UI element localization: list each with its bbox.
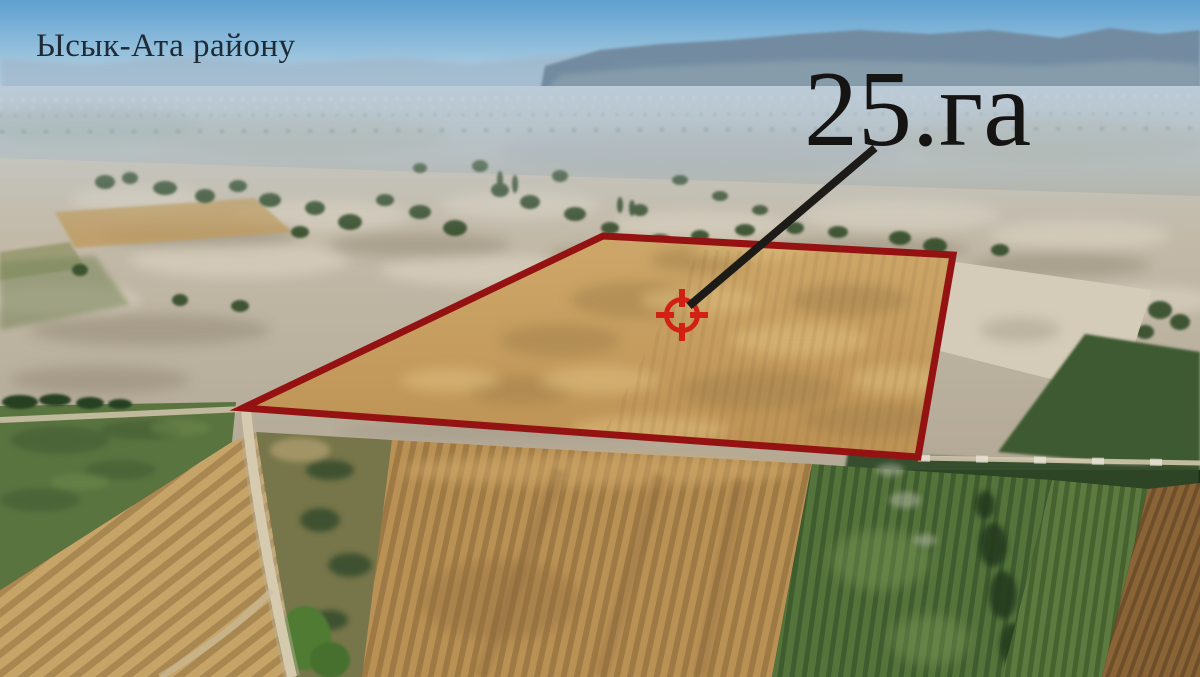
area-label: 25.га — [804, 56, 1031, 164]
aerial-photo-frame: Ысык-Ата району 25.га — [0, 0, 1200, 677]
region-label: Ысык-Ата району — [36, 28, 296, 65]
